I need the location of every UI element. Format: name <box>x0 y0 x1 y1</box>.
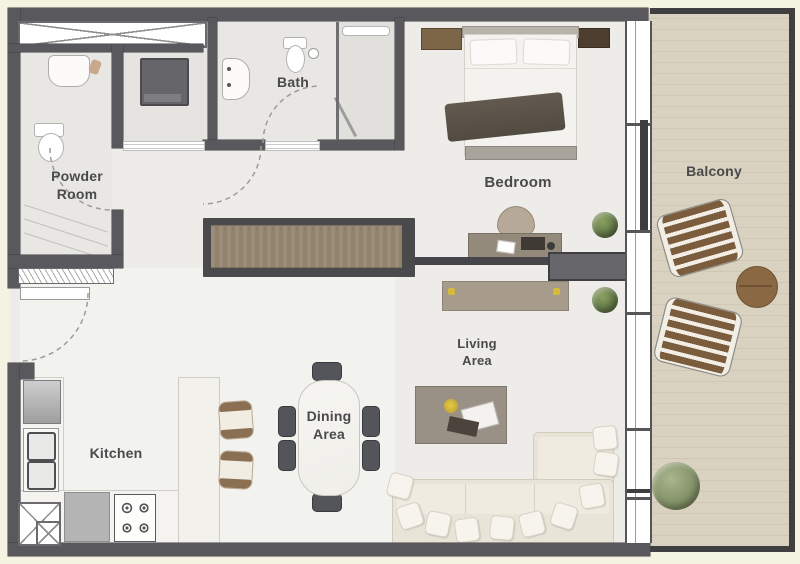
dining-chair <box>362 406 380 437</box>
wall-powder-right-lower <box>112 210 123 257</box>
bedroom-label-text: Bedroom <box>484 174 551 191</box>
cushion-divider <box>534 484 535 514</box>
stool-arm <box>219 478 251 489</box>
bed-fold-line <box>465 68 576 69</box>
window-mullion <box>627 497 650 500</box>
wall-under-shaft <box>8 44 203 52</box>
wall-bedroom-living-thin <box>415 257 550 265</box>
balcony-rail-top <box>650 8 795 14</box>
kitchen-sink-basin <box>27 461 56 490</box>
bedroom-dresser <box>421 28 462 50</box>
window-mullion <box>627 312 650 315</box>
wall-bath-bottom-left <box>203 140 265 150</box>
fridge-icon <box>23 380 61 424</box>
sofa-pillow <box>592 425 618 451</box>
coffee-table <box>415 386 507 444</box>
kitchen-label-text: Kitchen <box>90 445 143 461</box>
sofa-pillow <box>592 450 619 477</box>
vent-shaft-hatch <box>18 268 114 284</box>
sofa-pillow <box>489 515 515 541</box>
balcony-round-table <box>736 266 778 308</box>
entry-door-leaf <box>20 287 90 300</box>
bath-sink-tap <box>227 83 231 87</box>
balcony-rail-right <box>789 8 795 552</box>
wall-bedroom-living-chunk <box>548 252 634 281</box>
bath-sink-drain <box>227 67 231 71</box>
dining-chair <box>312 362 342 381</box>
washer-panel <box>144 94 181 102</box>
wall-top <box>8 8 648 21</box>
wall-bath-bottom-right <box>318 140 403 150</box>
room-label-bath: Bath <box>277 73 309 91</box>
desk-papers <box>496 240 515 254</box>
floor-plan-canvas: Powder Room Bath Bedroom Balcony Kitchen… <box>0 0 800 564</box>
nightstand <box>578 28 610 48</box>
balcony-rail-bottom <box>650 546 795 552</box>
stool-arm <box>219 401 252 412</box>
living-area-line1: Living <box>457 336 496 353</box>
powder-toilet-bowl <box>38 133 64 162</box>
flower-decor <box>444 399 458 413</box>
bath-label-text: Bath <box>277 74 309 90</box>
powder-sink <box>48 55 90 87</box>
kitchen-sink-basin <box>27 432 56 461</box>
sofa-pillow <box>578 482 606 510</box>
living-area-line2: Area <box>457 353 496 370</box>
washer-icon <box>140 58 189 106</box>
stool-arm <box>220 451 252 462</box>
laundry-door-threshold <box>123 141 205 151</box>
plant-icon <box>592 212 618 238</box>
bath-accessory <box>308 48 319 59</box>
wardrobe <box>203 218 415 277</box>
bar-stool <box>218 450 254 490</box>
window-mullion <box>627 428 650 431</box>
dining-area-line1: Dining <box>307 407 352 425</box>
bed-footboard <box>465 146 577 160</box>
wall-laundry-right <box>208 18 217 142</box>
shower-glass-partition <box>336 22 339 140</box>
cushion-divider <box>465 484 466 514</box>
wall-kitchen-corner <box>20 363 34 379</box>
sofa-pillow <box>453 516 480 543</box>
dining-chair <box>362 440 380 471</box>
console-decor <box>448 288 455 295</box>
shaft-box-bottom-inner <box>36 521 61 546</box>
sliding-door-panel <box>640 120 648 232</box>
wall-powder-bottom <box>8 255 123 268</box>
plant-icon <box>592 287 618 313</box>
dishwasher-icon <box>64 492 110 542</box>
shower-door-bar <box>342 26 390 36</box>
stool-arm <box>221 428 254 439</box>
room-label-bedroom: Bedroom <box>484 173 551 193</box>
room-label-kitchen: Kitchen <box>90 444 143 462</box>
room-label-balcony: Balcony <box>686 162 742 180</box>
stove-icon <box>114 494 156 542</box>
window-mullion <box>627 489 650 493</box>
wall-powder-right-upper <box>112 44 123 148</box>
kitchen-peninsula-counter <box>178 377 220 545</box>
console-sideboard <box>442 281 569 311</box>
sofa-pillow <box>424 510 452 538</box>
dining-chair <box>278 406 296 437</box>
balcony-plant-icon <box>652 462 700 510</box>
dining-chair <box>278 440 296 471</box>
kitchen-sink-unit <box>23 428 59 492</box>
wardrobe-interior <box>211 225 402 268</box>
window-wall-right <box>625 21 652 543</box>
laptop-icon <box>521 237 545 250</box>
wall-bottom <box>8 543 650 556</box>
balcony-label-text: Balcony <box>686 163 742 179</box>
bar-stool <box>218 400 255 440</box>
room-label-living-area: Living Area <box>457 336 496 370</box>
bed-pillow <box>470 38 518 66</box>
console-decor <box>553 288 560 295</box>
bath-toilet-bowl <box>286 45 305 73</box>
bed-pillow <box>523 38 571 66</box>
powder-room-line2: Room <box>51 185 103 203</box>
powder-room-line1: Powder <box>51 167 103 185</box>
bath-sink <box>222 58 250 100</box>
room-label-powder-room: Powder Room <box>51 167 103 203</box>
dining-area-line2: Area <box>307 425 352 443</box>
table-plank-line <box>739 285 772 287</box>
bath-door-threshold <box>265 141 320 151</box>
room-label-dining-area: Dining Area <box>307 407 352 443</box>
window-inner-line <box>635 21 636 543</box>
wall-bath-right <box>395 18 404 150</box>
desk-lamp <box>547 242 555 250</box>
window-mullion <box>627 230 650 233</box>
